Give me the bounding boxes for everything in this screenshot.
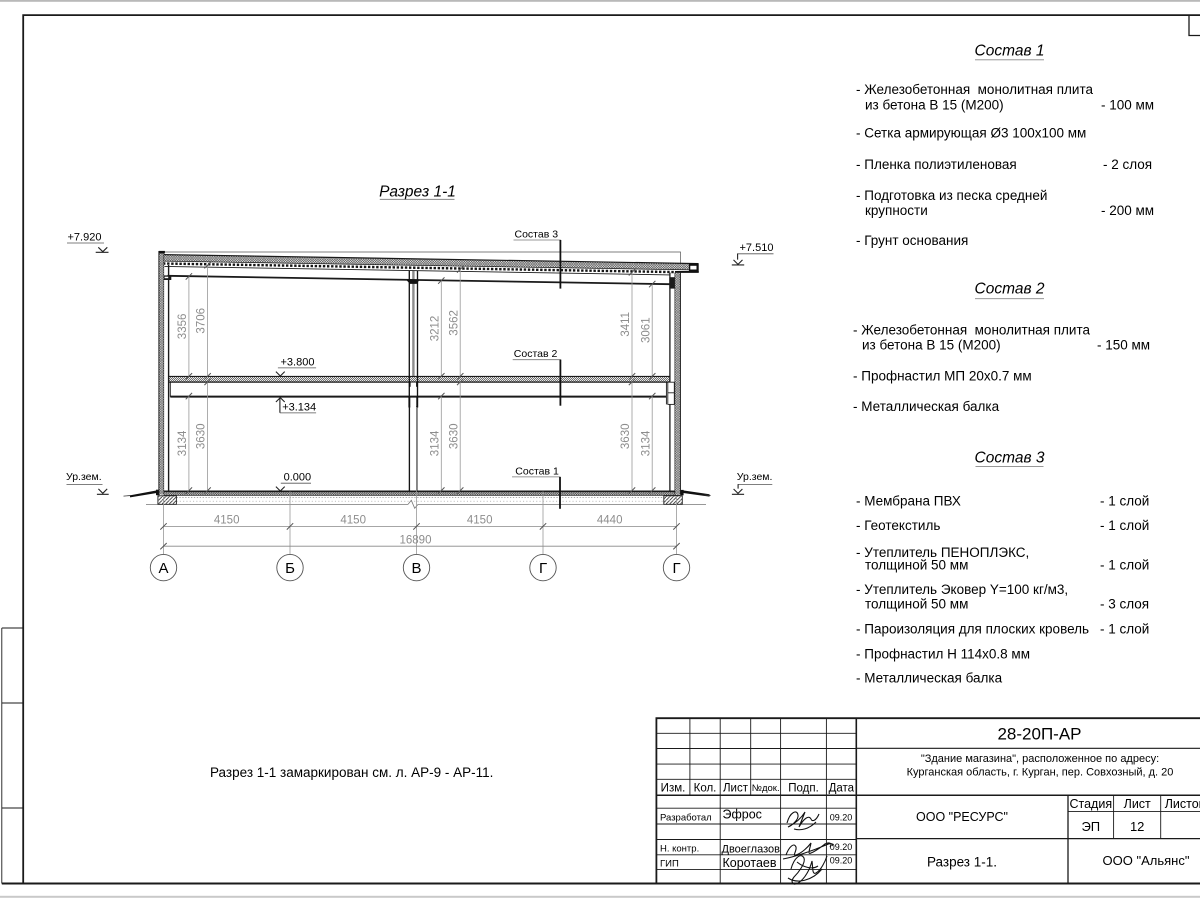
svg-text:3134: 3134: [640, 430, 652, 456]
svg-text:крупности: крупности: [865, 203, 928, 218]
svg-text:- Утеплитель Эковер Y=100 кг/м: - Утеплитель Эковер Y=100 кг/м3,: [856, 582, 1068, 597]
svg-text:Лист: Лист: [1124, 797, 1151, 811]
svg-text:ООО "РЕСУРС": ООО "РЕСУРС": [916, 810, 1008, 824]
svg-text:Дата: Дата: [829, 783, 855, 795]
svg-text:Состав 2: Состав 2: [514, 348, 558, 360]
svg-text:+7.510: +7.510: [740, 242, 774, 254]
svg-text:А: А: [158, 560, 168, 577]
svg-text:12: 12: [1130, 819, 1144, 834]
svg-text:3061: 3061: [640, 317, 652, 343]
svg-text:Состав 1: Состав 1: [515, 465, 559, 477]
svg-text:из бетона В 15 (М200): из бетона В 15 (М200): [865, 97, 1004, 112]
svg-text:Изм.: Изм.: [661, 783, 686, 795]
svg-text:- 1 слой: - 1 слой: [1100, 622, 1149, 637]
svg-text:Эфрос: Эфрос: [723, 808, 762, 822]
svg-text:- Мембрана ПВХ: - Мембрана ПВХ: [856, 493, 961, 508]
svg-text:28-20П-АР: 28-20П-АР: [997, 725, 1081, 744]
svg-text:3411: 3411: [620, 312, 632, 337]
svg-text:- Грунт основания: - Грунт основания: [856, 233, 968, 248]
svg-text:- 3 слоя: - 3 слоя: [1100, 596, 1149, 611]
svg-text:3630: 3630: [196, 424, 208, 450]
svg-text:Подп.: Подп.: [788, 783, 819, 795]
svg-text:+3.800: +3.800: [281, 356, 315, 368]
svg-text:4440: 4440: [597, 514, 623, 526]
svg-text:09.20: 09.20: [830, 813, 853, 823]
svg-text:- Железобетонная монолитная п: - Железобетонная монолитная плита: [856, 82, 1093, 97]
svg-text:3630: 3630: [620, 424, 632, 450]
svg-text:ЭП: ЭП: [1081, 819, 1100, 834]
svg-text:- 1 слой: - 1 слой: [1100, 493, 1149, 508]
svg-text:- 1 слой: - 1 слой: [1100, 558, 1149, 573]
svg-text:3134: 3134: [177, 430, 189, 456]
svg-text:Кол.: Кол.: [694, 783, 717, 795]
svg-text:ГИП: ГИП: [660, 859, 679, 870]
svg-text:3706: 3706: [196, 308, 208, 334]
svg-text:09.20: 09.20: [830, 842, 853, 852]
svg-text:3212: 3212: [429, 316, 441, 342]
svg-text:из бетона В 15 (М200): из бетона В 15 (М200): [862, 338, 1001, 353]
svg-text:- Подготовка из песка средней: - Подготовка из песка средней: [856, 188, 1047, 203]
svg-text:- Металлическая балка: - Металлическая балка: [853, 399, 1000, 414]
svg-text:Состав 3: Состав 3: [515, 228, 559, 240]
svg-text:3630: 3630: [448, 424, 460, 450]
svg-text:- Пароизоляция для плоских кро: - Пароизоляция для плоских кровель: [856, 622, 1089, 637]
svg-text:- Профнастил МП 20х0.7 мм: - Профнастил МП 20х0.7 мм: [853, 368, 1032, 383]
svg-text:- 150 мм: - 150 мм: [1097, 338, 1150, 353]
svg-text:4150: 4150: [340, 514, 366, 526]
svg-text:- 100 мм: - 100 мм: [1101, 97, 1154, 112]
svg-text:Состав 2: Состав 2: [975, 280, 1045, 297]
svg-text:Разрез 1-1 замаркирован см. л.: Разрез 1-1 замаркирован см. л. АР-9 - АР…: [210, 765, 493, 780]
svg-text:Ур.зем.: Ур.зем.: [66, 471, 102, 483]
svg-text:Курганская область, г. Курган,: Курганская область, г. Курган, пер. Совх…: [907, 766, 1174, 778]
svg-text:- Сетка армирующая Ø3 100х100: - Сетка армирующая Ø3 100х100 мм: [856, 126, 1086, 141]
svg-text:- Пленка полиэтиленовая: - Пленка полиэтиленовая: [856, 157, 1017, 172]
svg-text:Б: Б: [285, 560, 295, 577]
svg-text:№док.: №док.: [752, 783, 780, 794]
svg-text:+3.134: +3.134: [282, 402, 316, 414]
svg-text:- 200 мм: - 200 мм: [1101, 203, 1154, 218]
svg-text:Состав 1: Состав 1: [975, 43, 1045, 60]
svg-text:09.20: 09.20: [830, 855, 853, 865]
svg-text:Г: Г: [672, 560, 680, 577]
svg-text:Двоеглазов: Двоеглазов: [722, 844, 781, 856]
svg-text:ООО "Альянс": ООО "Альянс": [1103, 853, 1190, 868]
svg-text:+7.920: +7.920: [68, 231, 102, 243]
svg-text:Разрез 1-1: Разрез 1-1: [379, 183, 456, 200]
svg-text:Разрез 1-1.: Разрез 1-1.: [927, 854, 997, 869]
svg-text:4150: 4150: [467, 514, 493, 526]
svg-text:3356: 3356: [177, 314, 189, 340]
svg-text:- 1 слой: - 1 слой: [1100, 518, 1149, 533]
svg-text:- Железобетонная монолитная п: - Железобетонная монолитная плита: [853, 322, 1090, 337]
svg-text:Ур.зем.: Ур.зем.: [737, 471, 773, 483]
svg-text:"Здание магазина", расположенн: "Здание магазина", расположенное по адре…: [921, 753, 1159, 765]
svg-text:Коротаев: Коротаев: [723, 856, 777, 870]
svg-text:- 2 слоя: - 2 слоя: [1103, 157, 1152, 172]
svg-text:4150: 4150: [214, 514, 240, 526]
svg-text:Стадия: Стадия: [1069, 797, 1112, 811]
svg-text:Листов: Листов: [1165, 797, 1200, 811]
svg-text:толщиной 50 мм: толщиной 50 мм: [865, 596, 968, 611]
svg-text:толщиной 50 мм: толщиной 50 мм: [865, 558, 968, 573]
svg-text:0.000: 0.000: [284, 471, 312, 483]
svg-text:Н. контр.: Н. контр.: [660, 844, 699, 855]
svg-text:- Геотекстиль: - Геотекстиль: [856, 518, 940, 533]
svg-text:Состав 3: Состав 3: [975, 449, 1045, 466]
svg-text:Разработал: Разработал: [660, 812, 712, 823]
svg-text:Лист: Лист: [723, 783, 749, 795]
svg-text:- Металлическая балка: - Металлическая балка: [856, 671, 1003, 686]
svg-text:3562: 3562: [448, 310, 460, 336]
svg-text:- Профнастил Н 114х0.8 мм: - Профнастил Н 114х0.8 мм: [856, 646, 1030, 661]
svg-text:Г: Г: [539, 560, 547, 577]
svg-text:16890: 16890: [400, 535, 432, 547]
svg-text:В: В: [411, 560, 421, 577]
svg-text:3134: 3134: [429, 430, 441, 456]
